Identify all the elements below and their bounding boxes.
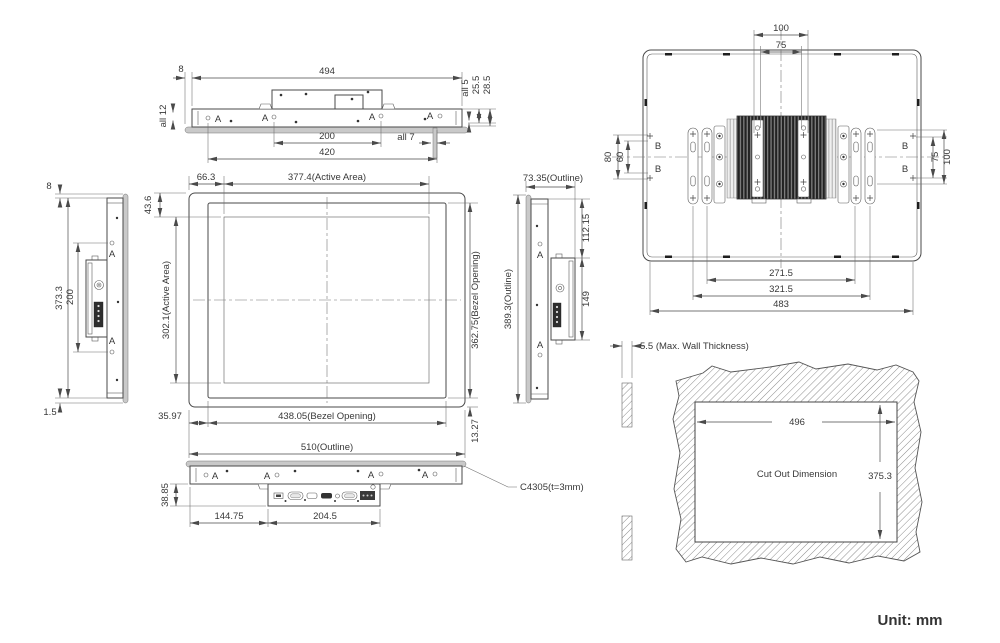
dim-25-5: 25.5 xyxy=(471,76,482,95)
mounting-stud xyxy=(433,128,437,158)
dim-494: 494 xyxy=(319,66,335,77)
wall-section xyxy=(622,383,632,427)
dim-112-15: 112.15 xyxy=(581,214,592,242)
front-glass-edge xyxy=(123,194,128,403)
dim-43-6: 43.6 xyxy=(143,196,154,215)
dim-8: 8 xyxy=(178,64,183,75)
dim-200: 200 xyxy=(319,131,335,142)
marker-a: A xyxy=(369,112,376,123)
dim-all5: all 5 xyxy=(460,79,471,96)
dim-144-75: 144.75 xyxy=(214,511,243,522)
dim-bezel-width: 438.05(Bezel Opening) xyxy=(278,411,376,422)
dim-375-3: 375.3 xyxy=(868,471,892,482)
dim-100-right: 100 xyxy=(942,149,953,165)
bottom-view: A A A A 38.85 144.75 204.5 C4305(t=3mm) xyxy=(160,461,584,527)
wall-section xyxy=(622,516,632,560)
marker-a: A xyxy=(537,340,544,351)
dim-35-97: 35.97 xyxy=(158,411,182,422)
dim-outline-width: 510(Outline) xyxy=(301,442,353,453)
marker-b: B xyxy=(902,141,908,152)
hdmi-port xyxy=(321,493,332,499)
marker-a: A xyxy=(109,249,116,260)
cutout-view: 5.5 (Max. Wall Thickness) 496 Cut Out Di… xyxy=(610,341,922,564)
chassis-body xyxy=(192,109,462,127)
heatsink-fins xyxy=(737,116,826,199)
unit-label: Unit: mm xyxy=(878,612,943,629)
dim-200: 200 xyxy=(65,289,76,305)
dim-75-top: 75 xyxy=(776,40,787,51)
dim-420: 420 xyxy=(319,147,335,158)
chassis-body xyxy=(531,199,548,399)
dim-8: 8 xyxy=(46,181,51,192)
note-glass-thickness: C4305(t=3mm) xyxy=(520,482,584,493)
dim-outline-depth: 73.35(Outline) xyxy=(523,173,583,184)
chassis-body xyxy=(107,198,123,398)
dim-60: 60 xyxy=(615,152,626,163)
cutout-label: Cut Out Dimension xyxy=(757,469,837,480)
dim-80: 80 xyxy=(603,152,614,163)
dim-100-top: 100 xyxy=(773,23,789,34)
marker-a: A xyxy=(262,113,269,124)
right-side-view: A A 73.35(Outline) 112.15 149 389.3(Outl… xyxy=(503,173,592,403)
rear-module xyxy=(272,90,382,109)
dim-13-27: 13.27 xyxy=(470,419,481,443)
marker-a: A xyxy=(422,470,429,481)
marker-a: A xyxy=(537,250,544,261)
rear-module xyxy=(551,258,575,340)
dim-bezel-height: 362.75(Bezel Opening) xyxy=(470,251,481,349)
marker-b: B xyxy=(655,164,661,175)
left-side-view: A A 8 373.3 1.5 200 xyxy=(43,181,128,418)
mechanical-drawing-page: A A A A 8 494 all 12 all 5 25.5 28.5 200… xyxy=(0,0,1000,643)
rear-view: B B B B 80 60 75 100 100 75 271.5 321.5 xyxy=(603,23,953,315)
marker-a: A xyxy=(215,114,222,125)
dim-active-height: 302.1(Active Area) xyxy=(161,261,172,339)
dim-1-5: 1.5 xyxy=(43,407,56,418)
marker-b: B xyxy=(655,141,661,152)
marker-a: A xyxy=(212,471,219,482)
dim-all12: all 12 xyxy=(158,105,169,128)
dim-204-5: 204.5 xyxy=(313,511,337,522)
dim-66-3: 66.3 xyxy=(197,172,216,183)
technical-drawing: A A A A 8 494 all 12 all 5 25.5 28.5 200… xyxy=(0,0,1000,643)
dim-483: 483 xyxy=(773,299,789,310)
front-view: 66.3 377.4(Active Area) 43.6 302.1(Activ… xyxy=(143,172,481,458)
dim-75-right: 75 xyxy=(930,152,941,163)
dim-271-5: 271.5 xyxy=(769,268,793,279)
dim-all7: all 7 xyxy=(397,132,414,143)
dim-outline-height: 389.3(Outline) xyxy=(503,269,514,329)
marker-b: B xyxy=(902,164,908,175)
marker-a: A xyxy=(109,336,116,347)
dim-active-width: 377.4(Active Area) xyxy=(288,172,366,183)
dim-496: 496 xyxy=(789,417,805,428)
marker-a: A xyxy=(427,111,434,122)
dim-321-5: 321.5 xyxy=(769,284,793,295)
front-glass-edge xyxy=(526,195,531,403)
dim-149: 149 xyxy=(581,291,592,307)
dim-28-5: 28.5 xyxy=(482,76,493,95)
marker-a: A xyxy=(264,471,271,482)
dim-38-85: 38.85 xyxy=(160,483,171,507)
dim-wall-thickness: 5.5 (Max. Wall Thickness) xyxy=(640,341,749,352)
top-view: A A A A 8 494 all 12 all 5 25.5 28.5 200… xyxy=(158,64,496,163)
marker-a: A xyxy=(368,470,375,481)
dim-373-3: 373.3 xyxy=(54,286,65,310)
